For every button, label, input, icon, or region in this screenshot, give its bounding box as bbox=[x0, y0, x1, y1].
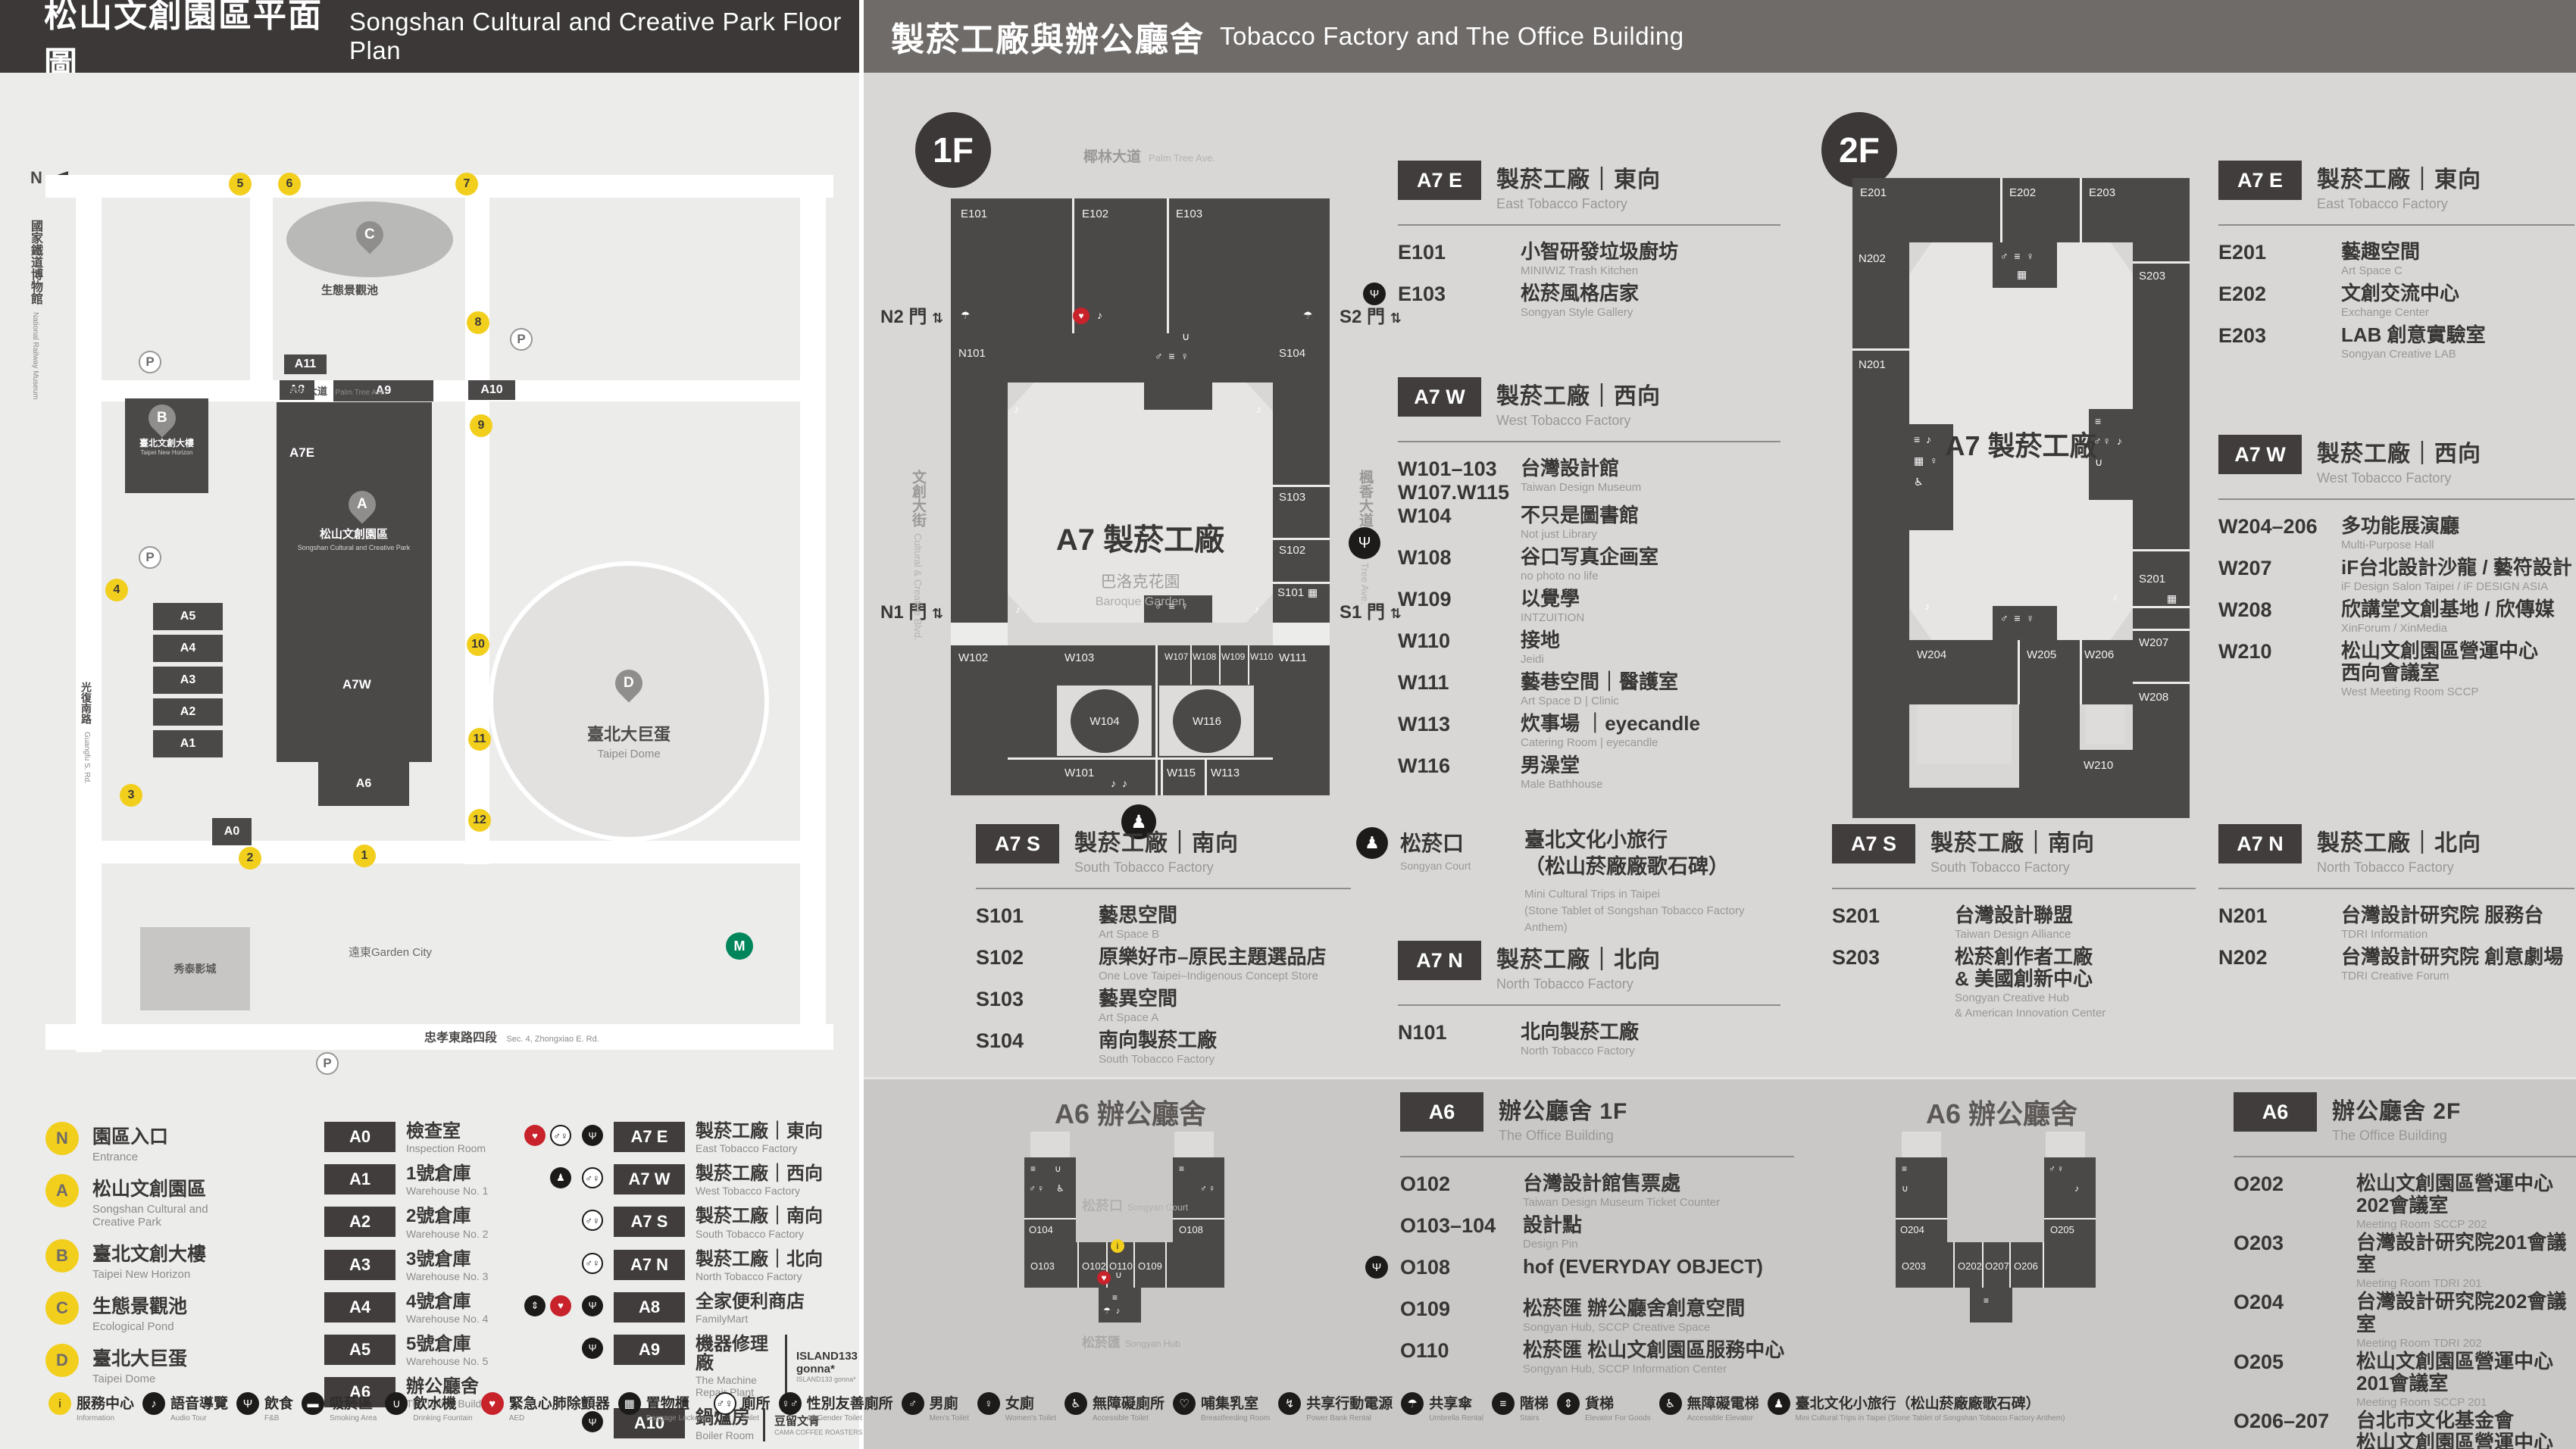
room-row: W208 欣講堂文創基地 / 欣傳媒 XinForum / XinMedia bbox=[2218, 598, 2574, 640]
stairs-icon: ≡ bbox=[1984, 1295, 1990, 1306]
gate-number-marker: 6 bbox=[278, 173, 301, 195]
room-row: W104 不只是圖書館 Not just Library bbox=[1398, 504, 1780, 546]
road-inner-west bbox=[250, 198, 273, 383]
breastfeeding-icon: ♡ bbox=[1173, 1392, 1196, 1415]
amenity-item: i 服務中心 Information bbox=[48, 1392, 134, 1422]
room-row: W108 谷口写真企画室 no photo no life bbox=[1398, 546, 1780, 588]
room-label: E201 bbox=[1860, 186, 1887, 199]
room-code: E103 bbox=[1398, 283, 1513, 306]
header-right: 製菸工廠與辦公廳舍 Tobacco Factory and The Office… bbox=[864, 0, 2576, 73]
songyan-court-block: ♟ 松菸口 Songyan Court 臺北文化小旅行（松山菸廠廠歌石碑） Mi… bbox=[1356, 827, 1788, 935]
legend-building-row: ♂♀ A7 W 製菸工廠｜西向 West Tobacco Factory bbox=[576, 1164, 864, 1197]
building-a6-office: A6 bbox=[318, 762, 409, 806]
section-tag: A7 S bbox=[1832, 824, 1915, 863]
room-label: S102 bbox=[1279, 544, 1305, 557]
wall-east-wing bbox=[1273, 333, 1330, 795]
drinking-fountain-icon: ∪ bbox=[1902, 1183, 1910, 1194]
road-maple-tree-ave bbox=[465, 198, 489, 864]
aed-icon: ♥ bbox=[1097, 1271, 1111, 1285]
room-name-en: Songyan Hub, SCCP Creative Space bbox=[1523, 1321, 1745, 1335]
road-guangfu-s bbox=[76, 175, 102, 1052]
room-name-en: Male Bathhouse bbox=[1521, 778, 1602, 792]
section-2f-south-tobacco: A7 S 製菸工廠｜南向 South Tobacco Factory S201 bbox=[1832, 824, 2196, 1020]
wall-north-wing bbox=[951, 198, 1330, 333]
section-1f-west-tobacco: A7 W 製菸工廠｜西向 West Tobacco Factory W101–1… bbox=[1398, 377, 1780, 796]
fnb-icon: Ψ bbox=[582, 1295, 603, 1316]
legend-building-row: Ψ A8 全家便利商店 FamilyMart bbox=[576, 1292, 864, 1325]
elevator-icon: ⇕ bbox=[524, 1295, 546, 1316]
info-icon: i bbox=[48, 1392, 71, 1415]
room-label: W207 bbox=[2139, 636, 2168, 649]
amenity-item: ♡ 哺集乳室 Breastfeeding Room bbox=[1173, 1392, 1270, 1422]
section-title-zh: 製菸工廠與辦公廳舍 bbox=[891, 12, 1205, 61]
road-label-zhongxiao: 忠孝東路四段 Sec. 4, Zhongxiao E. Rd. bbox=[424, 1027, 599, 1045]
section-title-en: East Tobacco Factory bbox=[1496, 196, 1661, 212]
room-name-zh: 台北市文化基金會 bbox=[2356, 1410, 2576, 1432]
room-name-zh: 台灣設計研究院201會議室 bbox=[2356, 1232, 2576, 1276]
room-name-en: Multi-Purpose Hall bbox=[2341, 539, 2459, 552]
room-name-zh: 藝異空間 bbox=[1099, 988, 1177, 1010]
room-name-zh: LAB 創意實驗室 bbox=[2341, 324, 2486, 346]
audio-tour-icons: ♪ ♪ bbox=[1111, 777, 1129, 789]
room-code: S103 bbox=[976, 988, 1091, 1011]
gate-number-marker: 9 bbox=[470, 414, 492, 437]
amenity-item: ♥ 緊急心肺除顫器 AED bbox=[481, 1392, 610, 1422]
legend-place-row: C 生態景觀池 Ecological Pond bbox=[45, 1291, 252, 1333]
room-row: S103 藝異空間 Art Space A bbox=[976, 988, 1351, 1029]
page-title-en: Songshan Cultural and Creative Park Floo… bbox=[349, 8, 859, 65]
amenity-item: ▦ 置物櫃 Baggage Lockers bbox=[618, 1392, 705, 1422]
room-label: S104 bbox=[1279, 347, 1305, 360]
all-gender-toilet-icon: ♀♂ bbox=[779, 1392, 802, 1415]
office-plan-title: A6 辦公廳舍 bbox=[1055, 1092, 1206, 1132]
legend-place-row: B 臺北文創大樓 Taipei New Horizon bbox=[45, 1239, 252, 1281]
room-name-zh: 炊事場 ｜eyecandle bbox=[1521, 713, 1700, 735]
room-row: O109 松菸匯 辦公廳舍創意空間 Songyan Hub, SCCP Crea… bbox=[1400, 1298, 1794, 1339]
room-label: W210 bbox=[2084, 759, 2113, 772]
map-legend: N 園區入口 Entrance A 松山文創園區 Songshan Cultur… bbox=[45, 1122, 864, 1387]
room-code: S101 bbox=[976, 904, 1091, 928]
restroom-stairs-icons: ♂ ≡ ♀ bbox=[1155, 600, 1190, 612]
room-label: O206 bbox=[2014, 1260, 2038, 1272]
wall-east-wing bbox=[2133, 242, 2190, 818]
room-name-zh: 北向製菸工廠 bbox=[1521, 1021, 1639, 1043]
goods-elevator-icon: ⇕ bbox=[1557, 1392, 1580, 1415]
building-tag: A7 N bbox=[614, 1250, 685, 1280]
accessible-elevator-icon: ♿ bbox=[1659, 1392, 1682, 1415]
building-tag: A5 bbox=[324, 1335, 395, 1365]
room-code: W111 bbox=[1398, 671, 1513, 695]
room-code: W101–103 bbox=[1398, 457, 1513, 481]
room-label: N202 bbox=[1859, 252, 1886, 265]
section-tag: A6 bbox=[1400, 1092, 1483, 1132]
room-label: O207 bbox=[1985, 1260, 2009, 1272]
building-tag: A8 bbox=[614, 1292, 685, 1323]
room-label: S203 bbox=[2139, 270, 2165, 283]
room-name-zh: 台灣設計聯盟 bbox=[1955, 904, 2073, 926]
room-name-en: TDRI Information bbox=[2341, 928, 2543, 942]
culture-trip-icon: ♟ bbox=[550, 1167, 571, 1188]
legend-buildings-col1: A0 檢查室 Inspection Room ♥♂♀ A1 1號倉庫 Wareh… bbox=[324, 1122, 574, 1419]
room-name-zh: 松山文創園區營運中心201會議室 bbox=[2356, 1351, 2576, 1394]
room-name-en: Art Space C bbox=[2341, 264, 2420, 278]
dome-label: 臺北大巨蛋 Taipei Dome bbox=[564, 721, 693, 760]
room-row: O102 台灣設計館售票處 Taiwan Design Museum Ticke… bbox=[1400, 1173, 1794, 1214]
building-tag: A3 bbox=[324, 1250, 395, 1280]
section-tag: A7 E bbox=[2218, 161, 2302, 200]
building-cinema: 秀泰影城 bbox=[140, 927, 250, 1010]
room-code: E101 bbox=[1398, 241, 1513, 264]
room-row: E203 LAB 創意實驗室 Songyan Creative LAB bbox=[2218, 324, 2574, 366]
garden-city-label: 遠東Garden City bbox=[349, 944, 432, 960]
audio-tour-icon: ♪ bbox=[2112, 591, 2119, 603]
room-row: E101 小智研發垃圾廚坊 MINIWIZ Trash Kitchen bbox=[1398, 241, 1780, 283]
room-code: O103–104 bbox=[1400, 1214, 1515, 1238]
room-label: W101 bbox=[1064, 767, 1094, 779]
fnb-icon: Ψ bbox=[582, 1125, 603, 1146]
room-row: N202 台灣設計研究院 創意劇場 TDRI Creative Forum bbox=[2218, 946, 2574, 988]
a7-courtyard-label: A7 製菸工廠 巴洛克花園 Baroque Garden bbox=[1008, 515, 1273, 609]
room-label: O203 bbox=[1902, 1260, 1926, 1272]
room-name-zh: 松菸創作者工廠 bbox=[1955, 946, 2106, 968]
accessible-icon: ♿ bbox=[1914, 476, 1925, 489]
floor-badge-1f: 1F bbox=[915, 112, 991, 188]
drinking-fountain-icon: ∪ bbox=[1055, 1163, 1063, 1174]
section-office-1f: A6 辦公廳舍 1F The Office Building O102 bbox=[1400, 1092, 1794, 1381]
room-label: E102 bbox=[1082, 208, 1108, 220]
room-name-en: North Tobacco Factory bbox=[1521, 1045, 1639, 1058]
legend-building-row: A5 5號倉庫 Warehouse No. 5 bbox=[324, 1335, 574, 1367]
room-name-zh: iF台北設計沙龍 / 藝符設計 bbox=[2341, 557, 2572, 579]
culture-trip-icon: ♟ bbox=[1356, 827, 1388, 859]
room-name-en: Art Space D | Clinic bbox=[1521, 695, 1678, 708]
room-name-zh: 藝趣空間 bbox=[2341, 241, 2420, 263]
room-row: S201 台灣設計聯盟 Taiwan Design Alliance bbox=[1832, 904, 2196, 946]
audio-tour-icon: ♪ bbox=[1256, 403, 1263, 415]
room-label: W108 bbox=[1193, 651, 1216, 662]
stairs-icon: ≡ bbox=[1112, 1292, 1119, 1303]
section-title-en: South Tobacco Factory bbox=[1930, 860, 2095, 876]
restroom-stairs-icons: ♂ ≡ ♀ bbox=[1155, 350, 1190, 362]
room-label: W103 bbox=[1064, 651, 1094, 664]
room-name-en: Meeting Room TDRI 201 bbox=[2356, 1277, 2576, 1291]
building-tag: A0 bbox=[324, 1122, 395, 1152]
pin-ecological-pond: C bbox=[45, 1291, 79, 1325]
room-code: O204 bbox=[2234, 1291, 2349, 1314]
section-title-en: The Office Building bbox=[1499, 1128, 1627, 1144]
room-name-zh: 松菸匯 松山文創園區服務中心 bbox=[1523, 1339, 1784, 1361]
pin-taipei-dome: D bbox=[45, 1344, 79, 1377]
room-row: O205 松山文創園區營運中心201會議室 Meeting Room SCCP … bbox=[2234, 1351, 2576, 1410]
room-label: E101 bbox=[961, 208, 987, 220]
building-tag: A7 S bbox=[614, 1207, 685, 1237]
legend-building-row: Ψ A7 E 製菸工廠｜東向 East Tobacco Factory bbox=[576, 1122, 864, 1154]
legend-place-row: D 臺北大巨蛋 Taipei Dome bbox=[45, 1344, 252, 1385]
room-code: E201 bbox=[2218, 241, 2334, 264]
map-building: A3 bbox=[153, 667, 223, 694]
section-title-zh: 製菸工廠｜東向 bbox=[1496, 161, 1661, 194]
room-name-zh: 接地 bbox=[1521, 629, 1560, 651]
gate-number-marker: 11 bbox=[468, 728, 491, 751]
amenity-item: ⇕ 貨梯 Elevator For Goods bbox=[1557, 1392, 1651, 1422]
room-name-zh: 藝巷空間｜醫護室 bbox=[1521, 671, 1678, 693]
amenity-item: ↯ 共享行動電源 Power Bank Rental bbox=[1278, 1392, 1393, 1422]
room-label: S201 bbox=[2139, 573, 2165, 586]
toilet-audio-icons: ♂♀ ♪ bbox=[2093, 435, 2124, 447]
park-label: 松山文創園區 Songshan Cultural and Creative Pa… bbox=[297, 526, 411, 551]
pin-taipei-new-horizon: B bbox=[45, 1239, 79, 1273]
room-name-en: no photo no life bbox=[1521, 570, 1658, 583]
room-label: W107 bbox=[1165, 651, 1188, 662]
stairs-icon: ≡ bbox=[2095, 415, 2102, 427]
room-code: O108 bbox=[1400, 1256, 1515, 1279]
drinking-fountain-icon: ∪ bbox=[1115, 1269, 1124, 1280]
room-code: W104 bbox=[1398, 504, 1513, 528]
room-label: W115 bbox=[1167, 767, 1196, 779]
umbrella-icon: ☂ bbox=[1303, 309, 1315, 322]
room-row: W207 iF台北設計沙龍 / 藝符設計 iF Design Salon Tai… bbox=[2218, 557, 2574, 598]
room-code: O202 bbox=[2234, 1173, 2349, 1196]
room-row: W210 松山文創園區營運中心 西向會議室 West Meeting Room … bbox=[2218, 640, 2574, 699]
room-name-en: Taiwan Design Museum Ticket Counter bbox=[1523, 1196, 1720, 1210]
room-row: S104 南向製菸工廠 South Tobacco Factory bbox=[976, 1029, 1351, 1071]
section-tag: A7 N bbox=[2218, 824, 2302, 863]
room-label: W109 bbox=[1221, 651, 1245, 662]
section-title-en: West Tobacco Factory bbox=[2317, 470, 2481, 486]
aed-icon: ♥ bbox=[550, 1295, 571, 1316]
section-title-en: East Tobacco Factory bbox=[2317, 196, 2481, 212]
road-north bbox=[45, 175, 833, 198]
room-row: N201 台灣設計研究院 服務台 TDRI Information bbox=[2218, 904, 2574, 946]
room-row: O206–207 台北市文化基金會 松山文創園區營運中心 Taipei Cult… bbox=[2234, 1410, 2576, 1449]
room-label: W205 bbox=[2027, 648, 2056, 661]
amenity-item: ∪ 飲水機 Drinking Fountain bbox=[385, 1392, 472, 1422]
room-code: S104 bbox=[976, 1029, 1091, 1053]
stairs-audio-icons: ≡ ♪ bbox=[1914, 433, 1933, 445]
section-1f-south-tobacco: A7 S 製菸工廠｜南向 South Tobacco Factory S101 bbox=[976, 824, 1351, 1071]
legend-building-row: A2 2號倉庫 Warehouse No. 2 bbox=[324, 1207, 574, 1239]
room-code: W204–206 bbox=[2218, 515, 2334, 539]
building-a7w-label: A7W bbox=[342, 677, 371, 692]
room-code: S102 bbox=[976, 946, 1091, 970]
mens-toilet-icon: ♂ bbox=[902, 1392, 924, 1415]
section-title-en: West Tobacco Factory bbox=[1496, 413, 1661, 429]
road-inner-south bbox=[76, 841, 800, 863]
room-name-zh: 台灣設計館 bbox=[1521, 457, 1641, 479]
building-tag: A2 bbox=[324, 1207, 395, 1237]
partner-brand: ISLAND133 gonna* ISLAND133 gonna* bbox=[785, 1335, 864, 1398]
stairs-icon: ≡ bbox=[1179, 1163, 1186, 1174]
gate-number-marker: 5 bbox=[229, 173, 252, 195]
cultural-creative-blvd-label: 文創大街Cultural & Creative Blvd. bbox=[908, 470, 928, 641]
room-label: W111 bbox=[1279, 651, 1307, 664]
legend-building-row: Ψ A9 機器修理廠 The Machine Repair Plant ISLA… bbox=[576, 1335, 864, 1398]
room-name-en: Art Space B bbox=[1099, 928, 1177, 942]
songyan-hub-label: 松菸匯Songyan Hub bbox=[1082, 1332, 1180, 1351]
room-code: W108 bbox=[1398, 546, 1513, 570]
toilet-icon: ♂♀ bbox=[714, 1392, 736, 1415]
audio-tour-icon: ♪ bbox=[1097, 309, 1104, 321]
room-row: S102 原樂好市–原民主題選品店 One Love Taipei–Indige… bbox=[976, 946, 1351, 988]
room-label: O205 bbox=[2050, 1224, 2074, 1235]
room-label: W110 bbox=[1250, 651, 1273, 662]
room-name-en: Songyan Style Gallery bbox=[1521, 306, 1639, 320]
room-label: E202 bbox=[2009, 186, 2036, 199]
room-name-en: iF Design Salon Taipei / iF DESIGN ASIA bbox=[2341, 580, 2572, 594]
section-tag: A6 bbox=[2234, 1092, 2317, 1132]
office-building-1f-plan: A6 辦公廳舍 松菸口Songyan Court O104O108O103O10… bbox=[985, 1083, 1379, 1356]
room-name-zh: 松山文創園區營運中心 bbox=[2341, 640, 2538, 662]
building-tag: A7 E bbox=[614, 1122, 685, 1152]
map-building: A0 bbox=[212, 818, 252, 845]
audio-tour-icon: ♪ bbox=[1015, 603, 1022, 615]
section-office-2f: A6 辦公廳舍 2F The Office Building O202 bbox=[2234, 1092, 2576, 1449]
mrt-station-icon: M bbox=[726, 932, 753, 960]
pin-songshan-park: A bbox=[45, 1174, 79, 1207]
road-label-palm: 椰林大道 Palm Tree Ave. bbox=[288, 383, 386, 398]
fnb-icon: Ψ bbox=[1365, 1256, 1388, 1279]
room-name-en: Meeting Room SCCP 202 bbox=[2356, 1218, 2576, 1232]
room-name-en: TDRI Creative Forum bbox=[2341, 970, 2563, 983]
room-row: Ψ E103 松菸風格店家 Songyan Style Gallery bbox=[1398, 283, 1780, 324]
room-name-en: Art Space A bbox=[1099, 1011, 1177, 1025]
gate-number-marker: 1 bbox=[353, 845, 376, 867]
section-title-zh: 製菸工廠｜東向 bbox=[2317, 161, 2481, 194]
section-2f-west-tobacco: A7 W 製菸工廠｜西向 West Tobacco Factory W204–2… bbox=[2218, 435, 2574, 699]
amenity-item: ▬ 吸菸區 Smoking Area bbox=[302, 1392, 377, 1422]
amenity-item: ♪ 語音導覽 Audio Tour bbox=[142, 1392, 228, 1422]
room-name-en: Taiwan Design Museum bbox=[1521, 481, 1641, 495]
wall-west-wing bbox=[951, 333, 1008, 795]
room-name-zh: 不只是圖書館 bbox=[1521, 504, 1639, 526]
room-name-en: Catering Room | eyecandle bbox=[1521, 736, 1700, 750]
section-1f-north-tobacco: A7 N 製菸工廠｜北向 North Tobacco Factory N101 bbox=[1398, 941, 1780, 1063]
room-label: O104 bbox=[1029, 1224, 1053, 1235]
power-bank-icon: ↯ bbox=[1278, 1392, 1301, 1415]
room-label: S103 bbox=[1279, 491, 1305, 504]
room-code: W207 bbox=[2218, 557, 2334, 580]
amenity-item: ♂♀ 廁所 Toilet bbox=[714, 1392, 771, 1422]
hall-oval-room: W104 bbox=[1071, 689, 1139, 753]
room-row: O203 台灣設計研究院201會議室 Meeting Room TDRI 201 bbox=[2234, 1232, 2576, 1291]
section-1f-east-tobacco: A7 E 製菸工廠｜東向 East Tobacco Factory E101 bbox=[1398, 161, 1780, 324]
umbrella-audio-icons: ☂ ♪ bbox=[1103, 1306, 1121, 1316]
room-row: O204 台灣設計研究院202會議室 Meeting Room TDRI 202 bbox=[2234, 1291, 2576, 1350]
room-name-en: Not just Library bbox=[1521, 528, 1639, 542]
room-label: N101 bbox=[958, 347, 986, 360]
floor-badge-2f: 2F bbox=[1821, 112, 1897, 188]
aed-icon: ♥ bbox=[1073, 308, 1089, 324]
drinking-fountain-icon: ∪ bbox=[2095, 456, 2104, 469]
header-left: 松山文創園區平面圖 Songshan Cultural and Creative… bbox=[0, 0, 859, 73]
room-label: S101 bbox=[1277, 586, 1304, 599]
amenity-legend-strip: i 服務中心 Information ♪ 語音導覽 Audio Tour Ψ 飲… bbox=[48, 1392, 2034, 1422]
floorplan-2f: 2F A7 製菸工廠 E201E202E203N202N201S203S201W… bbox=[1811, 106, 2250, 833]
toilet-icon: ♂♀ bbox=[582, 1167, 603, 1188]
room-label: E103 bbox=[1176, 208, 1202, 220]
toilet-icon: ♂♀ bbox=[582, 1253, 603, 1274]
section-title-zh: 製菸工廠｜西向 bbox=[2317, 435, 2481, 468]
room-name-en: Design Pin bbox=[1523, 1238, 1582, 1251]
building-tag: A7 W bbox=[614, 1164, 685, 1194]
room-name-zh: 南向製菸工廠 bbox=[1099, 1029, 1217, 1051]
gate-number-marker: 2 bbox=[239, 847, 261, 870]
room-code: S201 bbox=[1832, 904, 1947, 928]
section-title-en: North Tobacco Factory bbox=[2317, 860, 2481, 876]
room-row: S101 藝思空間 Art Space B bbox=[976, 904, 1351, 946]
office-plan-title: A6 辦公廳舍 bbox=[1926, 1092, 2077, 1132]
room-name-en: MINIWIZ Trash Kitchen bbox=[1521, 264, 1678, 278]
room-row: W101–103 W107.W115 台灣設計館 Taiwan Design M… bbox=[1398, 457, 1780, 504]
gate-label: N2 門 ⇅ bbox=[880, 301, 943, 328]
room-row: O202 松山文創園區營運中心202會議室 Meeting Room SCCP … bbox=[2234, 1173, 2576, 1232]
legend-place-row: A 松山文創園區 Songshan Cultural and Creative … bbox=[45, 1174, 252, 1229]
section-tag: A7 N bbox=[1398, 941, 1481, 980]
locker-toilet-icons: ▦ ♀ bbox=[1914, 454, 1940, 467]
room-name-en: Meeting Room TDRI 202 bbox=[2356, 1337, 2576, 1351]
room-row: S203 松菸創作者工廠 & 美國創新中心 Songyan Creative H… bbox=[1832, 946, 2196, 1020]
amenity-item: ♟ 臺北文化小旅行（松山菸廠廠歌石碑） Mini Cultural Trips … bbox=[1768, 1392, 2065, 1422]
road-label-guangfu: 光復南路 Guangfu S. Rd. bbox=[79, 682, 94, 784]
room-code: W116 bbox=[1398, 754, 1513, 778]
wall-west-wing bbox=[1852, 242, 1909, 818]
pond-label: 生態景觀池 bbox=[321, 282, 378, 298]
map-building: A11 bbox=[284, 354, 327, 374]
room-code: W109 bbox=[1398, 588, 1513, 611]
gate-number-marker: 7 bbox=[455, 173, 478, 195]
section-title-zh: 製菸工廠｜南向 bbox=[1930, 824, 2095, 857]
amenity-item: ♿ 無障礙電梯 Accessible Elevator bbox=[1659, 1392, 1759, 1422]
room-row: W116 男澡堂 Male Bathhouse bbox=[1398, 754, 1780, 796]
building-a7e-label: A7E bbox=[289, 445, 314, 461]
drinking-fountain-icon: ∪ bbox=[1182, 330, 1191, 343]
map-building: A5 bbox=[153, 603, 223, 630]
room-name-en: Songyan Hub, SCCP Information Center bbox=[1523, 1363, 1784, 1376]
section-2f-north-tobacco: A7 N 製菸工廠｜北向 North Tobacco Factory N201 bbox=[2218, 824, 2574, 988]
section-tag: A7 S bbox=[976, 824, 1059, 863]
building-tag: A1 bbox=[324, 1164, 395, 1194]
legend-building-row: A0 檢查室 Inspection Room ♥♂♀ bbox=[324, 1122, 574, 1154]
section-title-en: Tobacco Factory and The Office Building bbox=[1220, 22, 1684, 51]
hall-oval-room: W116 bbox=[1173, 689, 1241, 753]
restroom-stairs-icons: ♂ ≡ ♀ bbox=[2000, 250, 2036, 262]
room-label: W102 bbox=[958, 651, 988, 664]
toilet-icon: ♂♀ bbox=[582, 1210, 603, 1231]
umbrella-icon: ☂ bbox=[1401, 1392, 1424, 1415]
office-building-2f-plan: A6 辦公廳舍 O204O205O203O202O207O206 ≡∪♂♀♪≡ bbox=[1856, 1083, 2250, 1356]
room-row: O110 松菸匯 松山文創園區服務中心 Songyan Hub, SCCP In… bbox=[1400, 1339, 1794, 1381]
room-label: O202 bbox=[1958, 1260, 1982, 1272]
room-row: O103–104 設計點 Design Pin bbox=[1400, 1214, 1794, 1256]
room-name-zh: 松菸風格店家 bbox=[1521, 283, 1639, 304]
legend-building-row: A4 4號倉庫 Warehouse No. 4 ⇕♥ bbox=[324, 1292, 574, 1325]
room-label: O204 bbox=[1900, 1224, 1924, 1235]
room-label: W206 bbox=[2084, 648, 2114, 661]
room-row: W109 以覺學 INTZUITION bbox=[1398, 588, 1780, 629]
room-row: E201 藝趣空間 Art Space C bbox=[2218, 241, 2574, 283]
legend-building-row: A1 1號倉庫 Warehouse No. 1 ♟ bbox=[324, 1164, 574, 1197]
section-tag: A7 W bbox=[2218, 435, 2302, 474]
room-name-zh: 台灣設計研究院 創意劇場 bbox=[2341, 946, 2563, 968]
legend-building-row: ♂♀ A7 S 製菸工廠｜南向 South Tobacco Factory bbox=[576, 1207, 864, 1239]
stairs-icon: ≡ bbox=[1030, 1163, 1037, 1174]
room-name-zh: 男澡堂 bbox=[1521, 754, 1602, 776]
room-name-zh: 文創交流中心 bbox=[2341, 283, 2459, 304]
room-code: O205 bbox=[2234, 1351, 2349, 1374]
room-code: O102 bbox=[1400, 1173, 1515, 1196]
baggage-locker-icon: ▦ bbox=[2017, 268, 2028, 281]
room-row: W113 炊事場 ｜eyecandle Catering Room | eyec… bbox=[1398, 713, 1780, 754]
